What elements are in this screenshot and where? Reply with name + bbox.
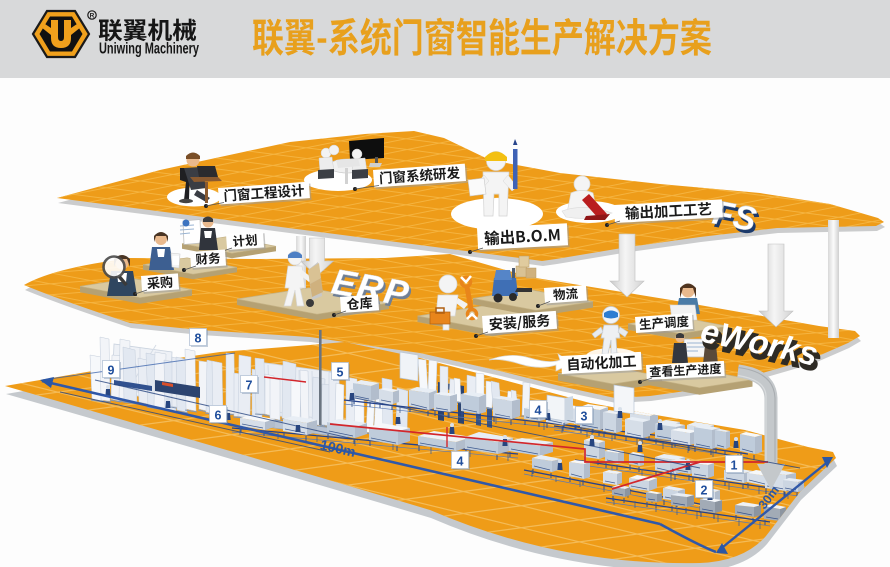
svg-text:8: 8 <box>195 332 202 346</box>
svg-text:7: 7 <box>246 379 253 393</box>
svg-text:4: 4 <box>457 455 464 469</box>
svg-text:R: R <box>90 13 95 20</box>
svg-text:6: 6 <box>215 409 222 423</box>
svg-text:5: 5 <box>337 366 344 380</box>
svg-text:4: 4 <box>535 404 542 418</box>
svg-text:Uniwing Machinery: Uniwing Machinery <box>99 41 199 58</box>
svg-text:1: 1 <box>731 459 738 473</box>
svg-text:2: 2 <box>701 484 708 498</box>
svg-text:9: 9 <box>108 364 115 378</box>
svg-text:3: 3 <box>581 410 588 424</box>
